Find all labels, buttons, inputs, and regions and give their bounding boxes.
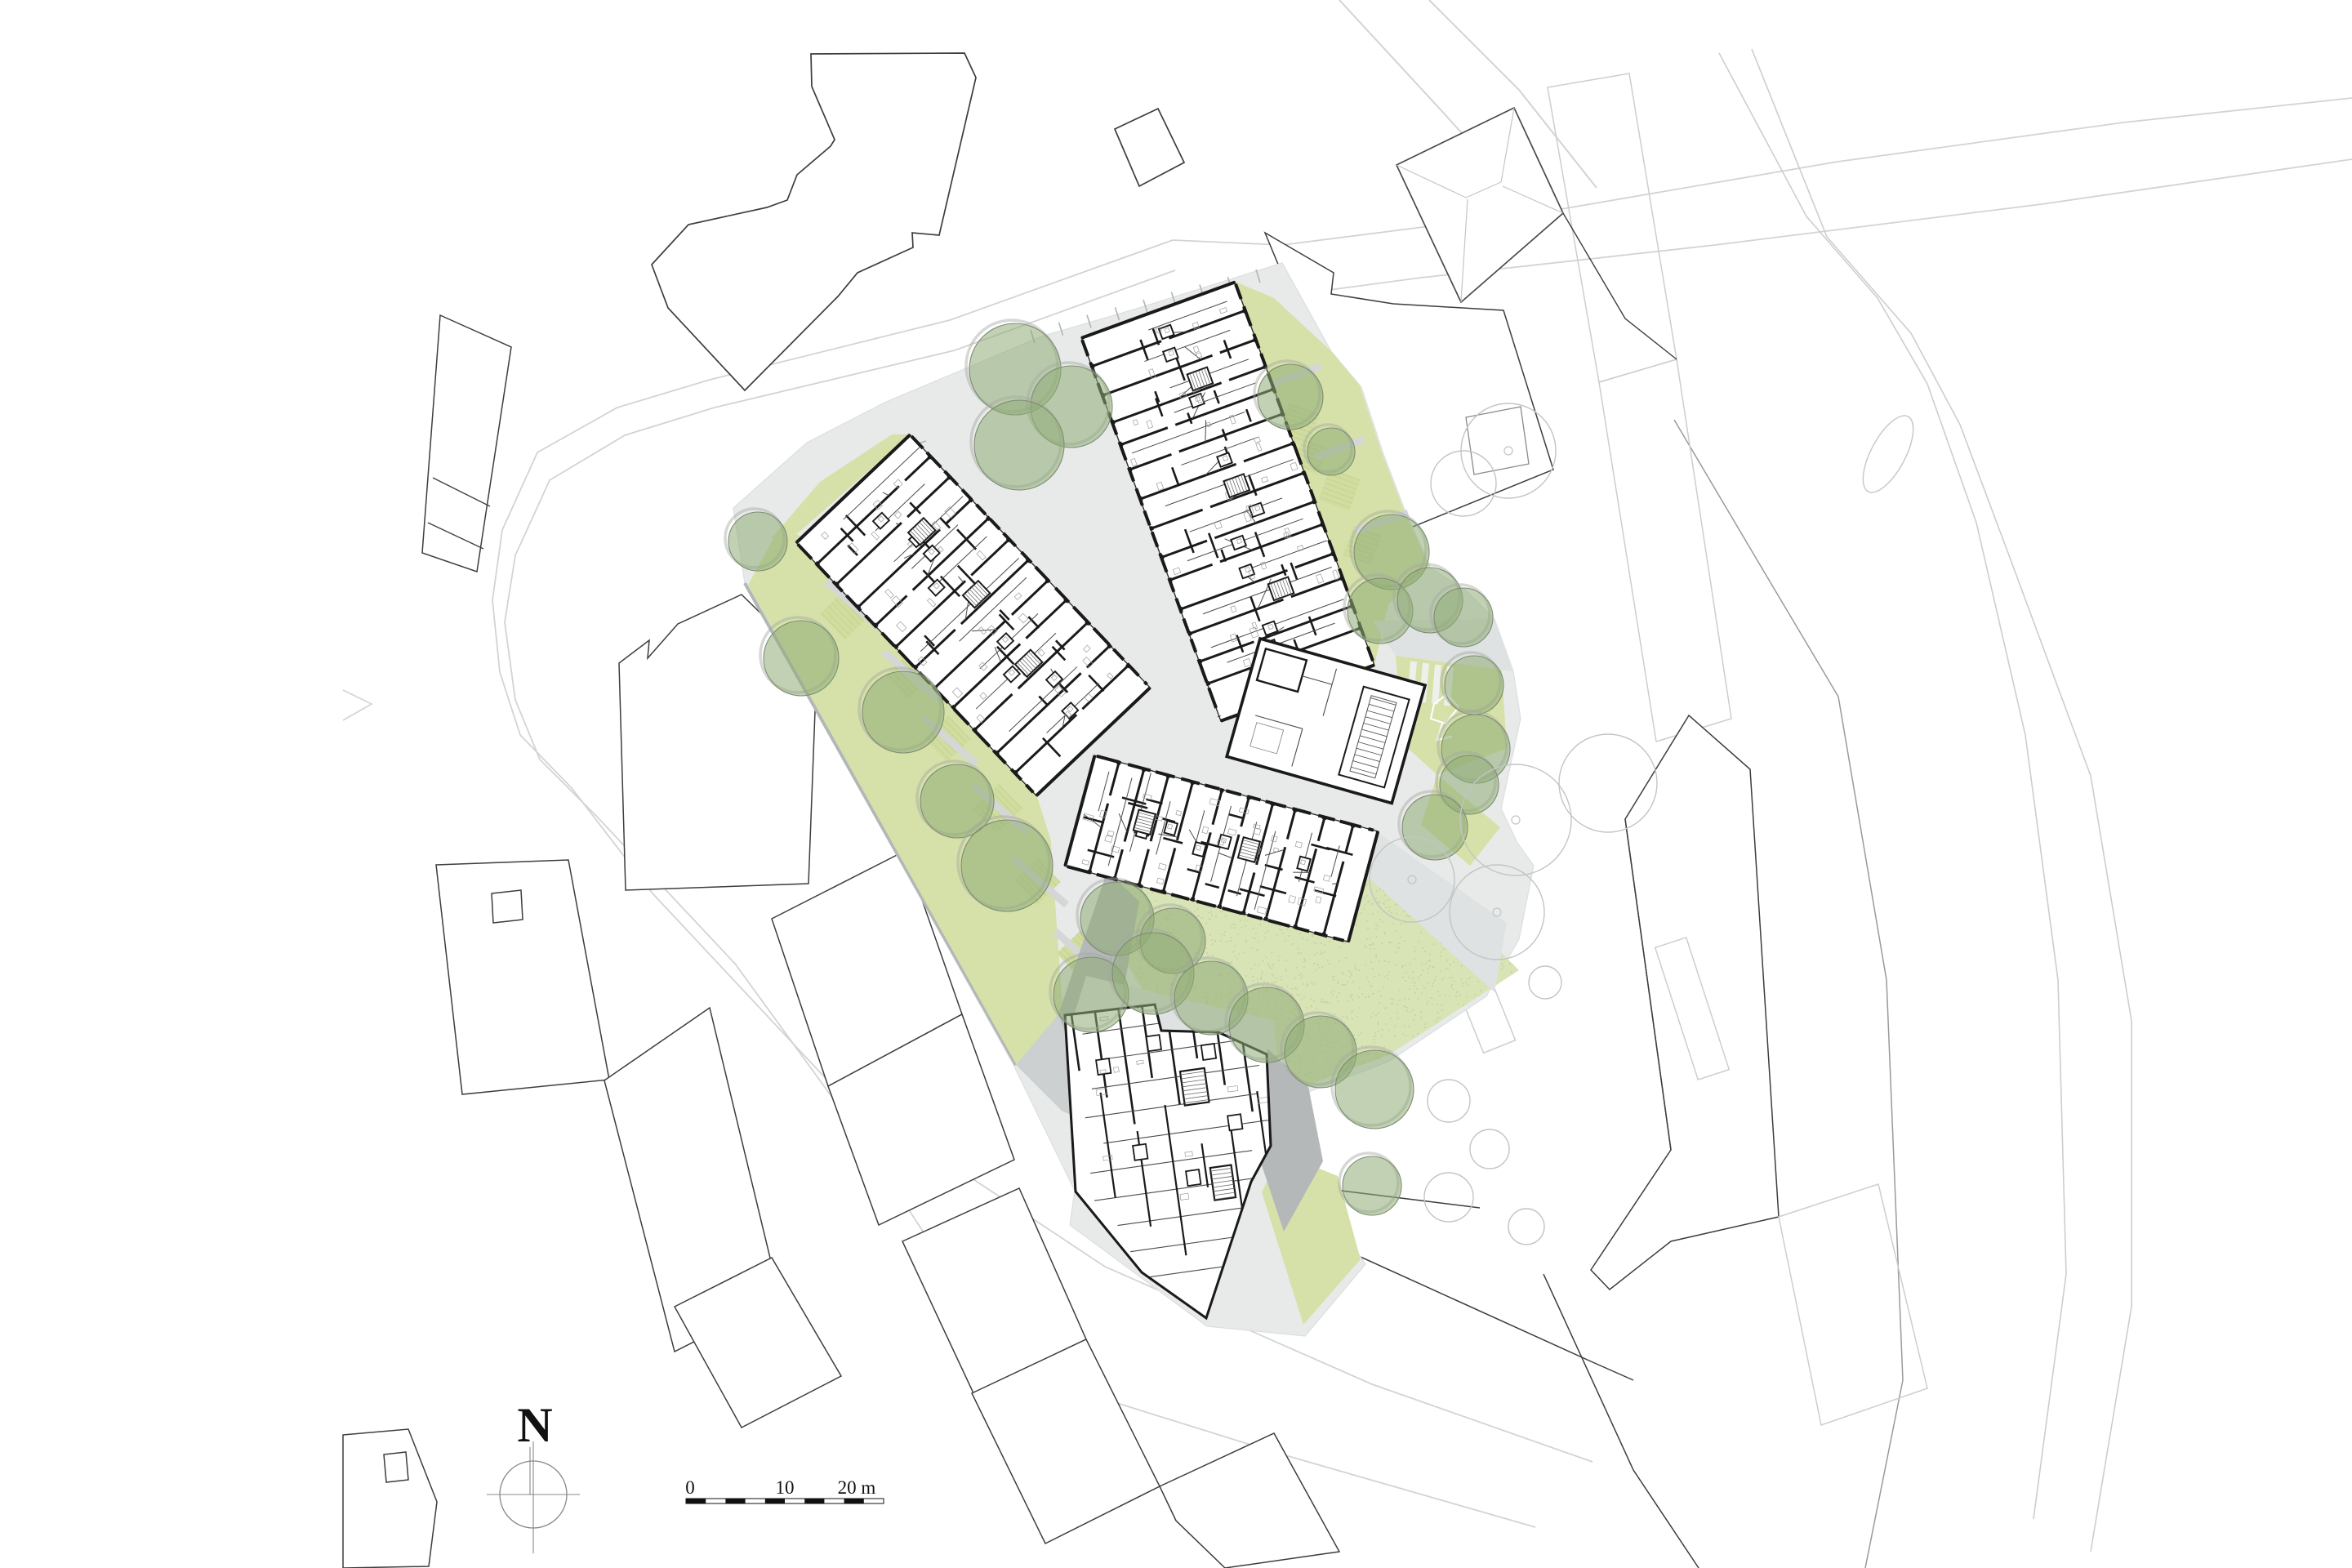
svg-text:20 m: 20 m — [838, 1477, 876, 1498]
svg-text:10: 10 — [776, 1477, 795, 1498]
svg-text:0: 0 — [685, 1477, 695, 1498]
svg-text:N: N — [517, 1398, 552, 1452]
